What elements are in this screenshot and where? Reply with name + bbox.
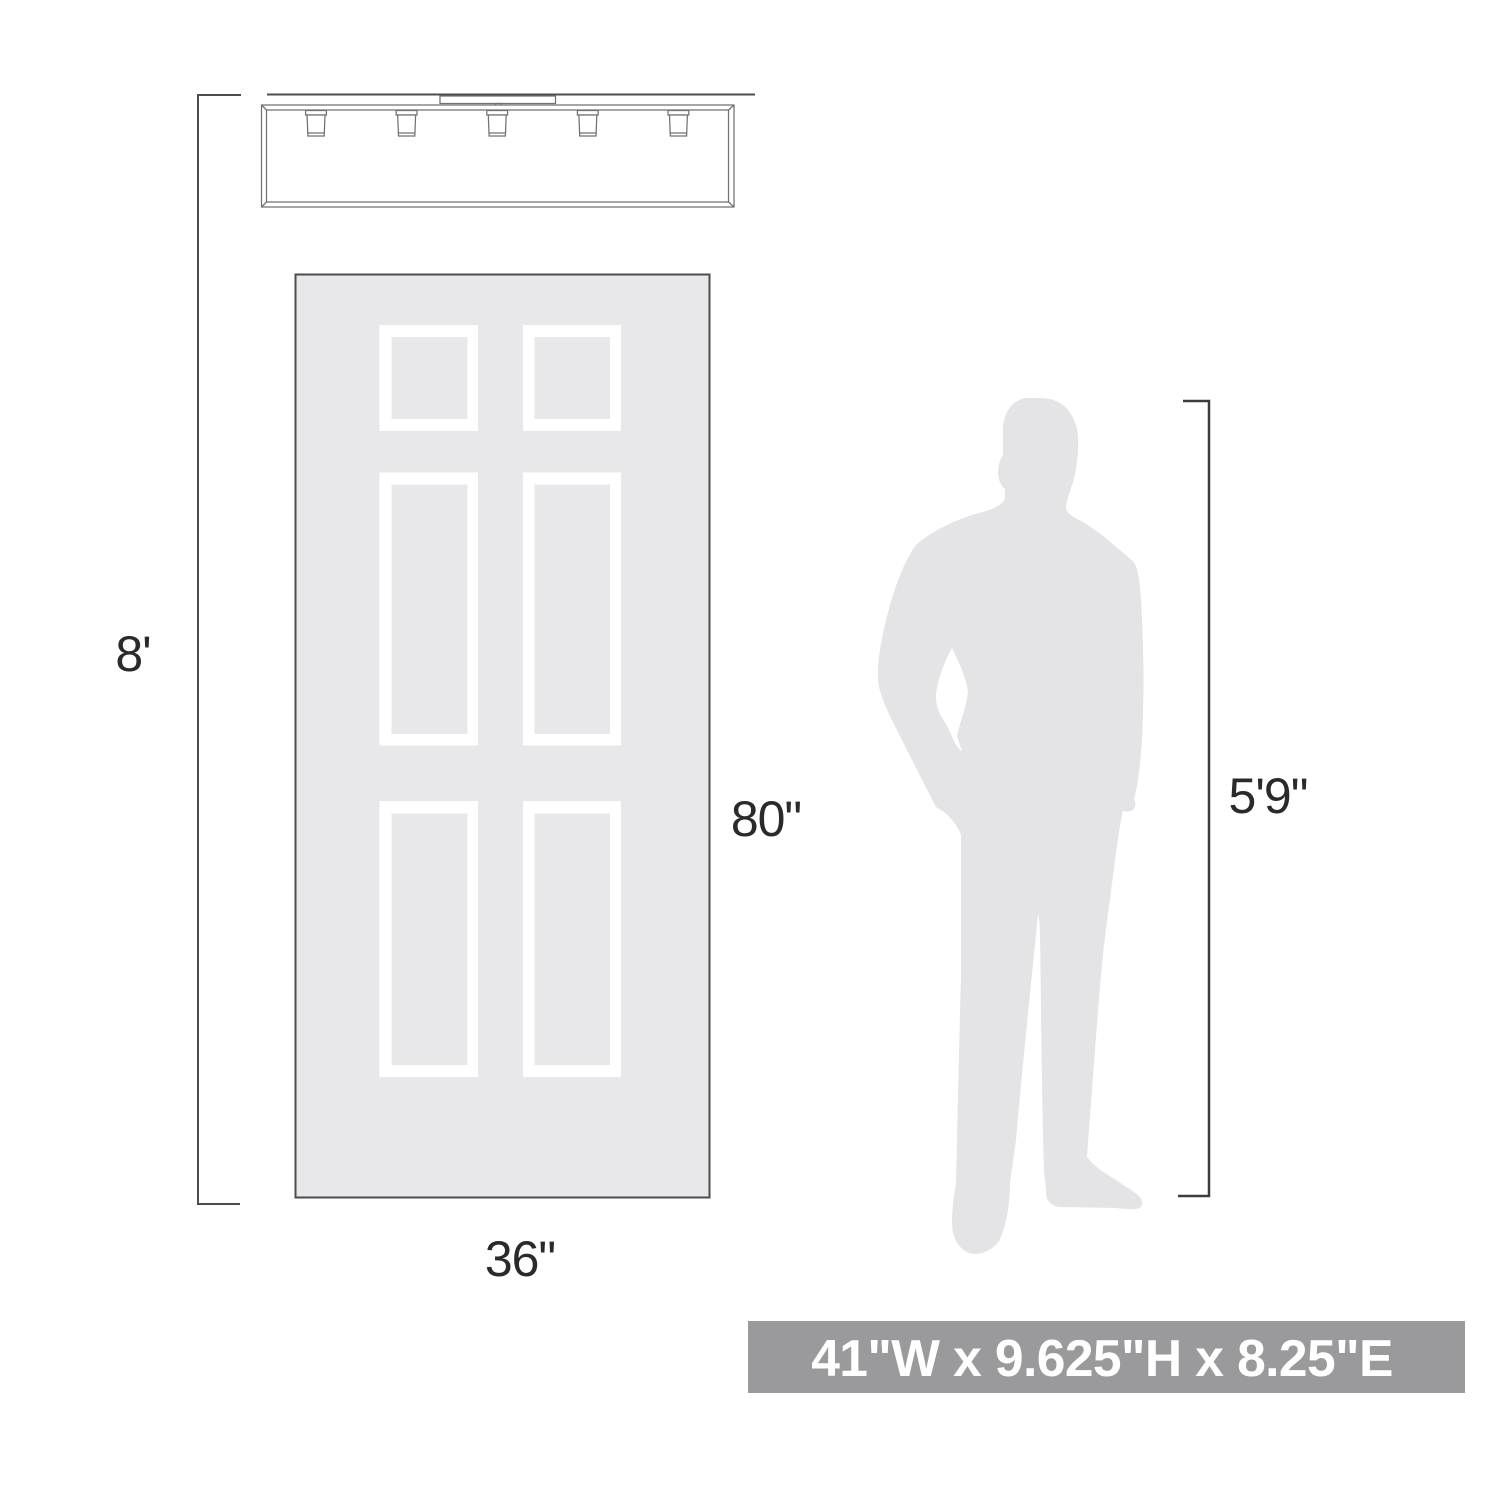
svg-text:41"W x 9.625"H x 8.25"E: 41"W x 9.625"H x 8.25"E: [811, 1329, 1393, 1387]
svg-text:36": 36": [485, 1231, 555, 1287]
svg-text:8': 8': [115, 626, 150, 682]
svg-text:5'9": 5'9": [1229, 768, 1308, 824]
svg-text:80": 80": [731, 791, 801, 847]
